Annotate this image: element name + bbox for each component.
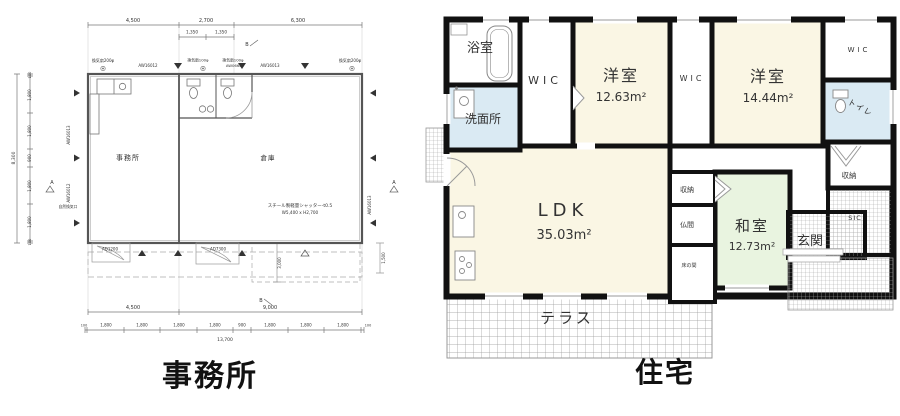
dim-bd-9: 1,800	[337, 323, 349, 328]
note-aw16013-right: AW16013	[367, 195, 372, 215]
warehouse-room-label: 倉庫	[261, 153, 276, 162]
dim-left-6: 1,800	[27, 216, 32, 228]
house-caption: 住宅	[515, 351, 815, 391]
dim-left-total: 8,300	[11, 151, 17, 164]
dim-bd-8: 1,800	[300, 323, 312, 328]
dim-bd-6: 900	[238, 323, 246, 328]
dim-bottom-main-2: 9,000	[263, 305, 277, 311]
dim-top-1: 4,500	[126, 18, 140, 24]
wic-left-label: WIC	[528, 74, 562, 87]
note-fan100-b: 換気扇100φ	[222, 58, 244, 63]
note-natural-vent: 自然換気口	[59, 204, 78, 209]
tokonoma-room	[670, 245, 715, 302]
ldk-area: 35.03m²	[536, 228, 591, 243]
porch-area	[788, 258, 893, 310]
dim-bd-4: 1,800	[173, 323, 185, 328]
bedroom1-label: 洋室	[603, 66, 639, 85]
office-room-label: 事務所	[116, 153, 140, 162]
bathroom-label: 浴室	[467, 40, 493, 56]
note-shutter-line2: W5,400 x H2,700	[282, 210, 319, 215]
dim-canopy-depth: 1,500	[381, 252, 386, 264]
note-aw16013-left: AW16013	[66, 125, 71, 145]
dim-left-1: 100	[28, 71, 32, 79]
dim-top-sub-1: 1,350	[186, 30, 198, 35]
office-dim-bottom	[85, 309, 364, 333]
note-fan200-right: 換気扇200φ	[339, 57, 362, 63]
note-fan200-left: 換気扇200φ	[92, 57, 115, 63]
dim-bd-5: 1,800	[209, 323, 221, 328]
dim-opening-height: 3,000	[277, 257, 282, 269]
wic-mid-room	[670, 20, 712, 146]
floor-plan-page: 4,500 2,700 6,300 1,350 1,350 100 1,800 …	[0, 0, 900, 416]
washitsu-area: 12.73m²	[729, 240, 776, 253]
dim-bd-1: 100	[81, 324, 87, 328]
dim-left-5: 1,800	[27, 180, 32, 192]
washroom-label: 洗面所	[465, 112, 501, 126]
sic-label: SIC	[848, 214, 862, 222]
door-code-mid: AD7300	[210, 247, 226, 252]
ldk-label: LDK	[538, 200, 589, 221]
dim-bd-7: 1,800	[264, 323, 276, 328]
dim-bottom-main-1: 4,500	[126, 305, 140, 311]
ldk-room	[447, 146, 670, 296]
bedroom1-area: 12.63m²	[596, 90, 647, 104]
dim-bd-10: 100	[365, 324, 371, 328]
terrace-label: テラス	[540, 309, 594, 327]
terrace-area	[447, 296, 712, 358]
section-marker-b-top: B	[245, 42, 249, 48]
door-code-left: AD1200	[102, 247, 118, 252]
office-floor-plan: 4,500 2,700 6,300 1,350 1,350 100 1,800 …	[0, 0, 420, 350]
section-marker-a-right: A	[392, 180, 396, 186]
section-marker-b-bottom: B	[259, 298, 263, 304]
vent-arrow-outline-icon	[301, 250, 309, 256]
bedroom2-label: 洋室	[750, 67, 786, 86]
dim-left-3: 1,800	[27, 125, 32, 137]
dim-bd-3: 1,800	[136, 323, 148, 328]
butsuma-label: 仏間	[680, 221, 694, 229]
tokonoma-label: 床の間	[681, 262, 696, 269]
dim-left-2: 1,800	[27, 89, 32, 101]
dim-bd-2: 1,800	[100, 323, 112, 328]
wic-right-label: WIC	[848, 46, 871, 54]
dim-left-4: 900	[27, 154, 32, 162]
closet-right-label: 収納	[842, 170, 857, 180]
wic-mid-label: WIC	[680, 74, 705, 83]
section-marker-a-left: A	[50, 180, 54, 186]
dim-top-2: 2,700	[199, 18, 213, 24]
dim-left-7: 100	[28, 238, 32, 246]
note-aw16013-top: AW16013	[260, 63, 280, 68]
bedroom2-area: 14.44m²	[743, 91, 794, 105]
genkan-label: 玄関	[797, 234, 823, 249]
dim-top-sub-2: 1,350	[215, 30, 227, 35]
house-floor-plan: 浴室 洗面所 WIC 洋室 12.63m² WIC 洋室 14.44m² WIC…	[425, 0, 900, 370]
dim-top-3: 6,300	[291, 18, 305, 24]
closet-top-label: 収納	[680, 185, 694, 194]
note-aw06605: AW06605	[226, 63, 245, 68]
note-aw16012-top: AW16012	[138, 63, 158, 68]
office-caption: 事務所	[60, 351, 360, 395]
note-aw16012-left: AW16012	[66, 183, 71, 203]
note-shutter-line1: スチール製軽量シャッター-t0.5	[268, 202, 333, 209]
note-fan100-a: 換気扇100φ	[187, 58, 209, 63]
washitsu-label: 和室	[735, 217, 769, 235]
dim-bottom-total: 13,700	[217, 337, 233, 343]
